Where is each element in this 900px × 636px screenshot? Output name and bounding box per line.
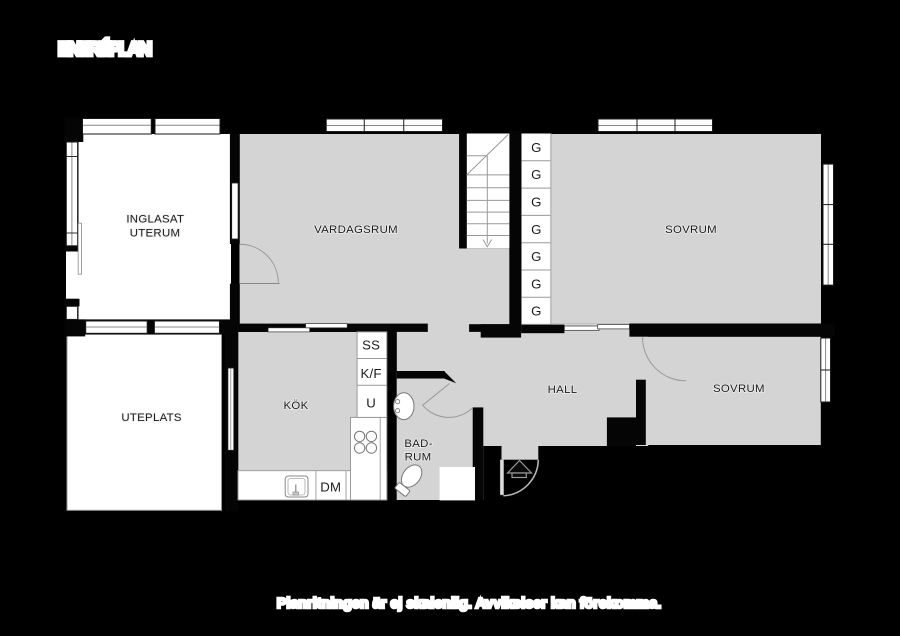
svg-text:G: G xyxy=(531,140,541,155)
svg-text:G: G xyxy=(531,222,541,237)
svg-text:SOVRUM: SOVRUM xyxy=(713,383,765,395)
svg-text:G: G xyxy=(531,195,541,210)
svg-text:UTEPLATS: UTEPLATS xyxy=(121,412,182,424)
svg-text:BAD-: BAD- xyxy=(404,438,432,450)
svg-text:Planritningen är ej skalenlig.: Planritningen är ej skalenlig. Avvikelse… xyxy=(277,596,661,612)
svg-text:DM: DM xyxy=(320,479,341,494)
svg-text:ENTRÉPLAN: ENTRÉPLAN xyxy=(58,39,151,61)
svg-text:G: G xyxy=(531,276,541,291)
svg-text:HALL: HALL xyxy=(548,384,578,396)
svg-text:U: U xyxy=(366,396,376,411)
svg-text:INGLASAT: INGLASAT xyxy=(126,213,184,225)
svg-text:G: G xyxy=(531,304,541,319)
svg-text:G: G xyxy=(531,167,541,182)
svg-text:VARDAGSRUM: VARDAGSRUM xyxy=(314,224,398,236)
svg-text:KÖK: KÖK xyxy=(284,400,309,412)
svg-text:K/F: K/F xyxy=(361,366,382,381)
svg-text:SS: SS xyxy=(362,338,380,353)
svg-text:G: G xyxy=(531,249,541,264)
svg-text:SOVRUM: SOVRUM xyxy=(665,224,717,236)
svg-text:UTERUM: UTERUM xyxy=(130,228,181,240)
svg-text:RUM: RUM xyxy=(405,452,432,464)
